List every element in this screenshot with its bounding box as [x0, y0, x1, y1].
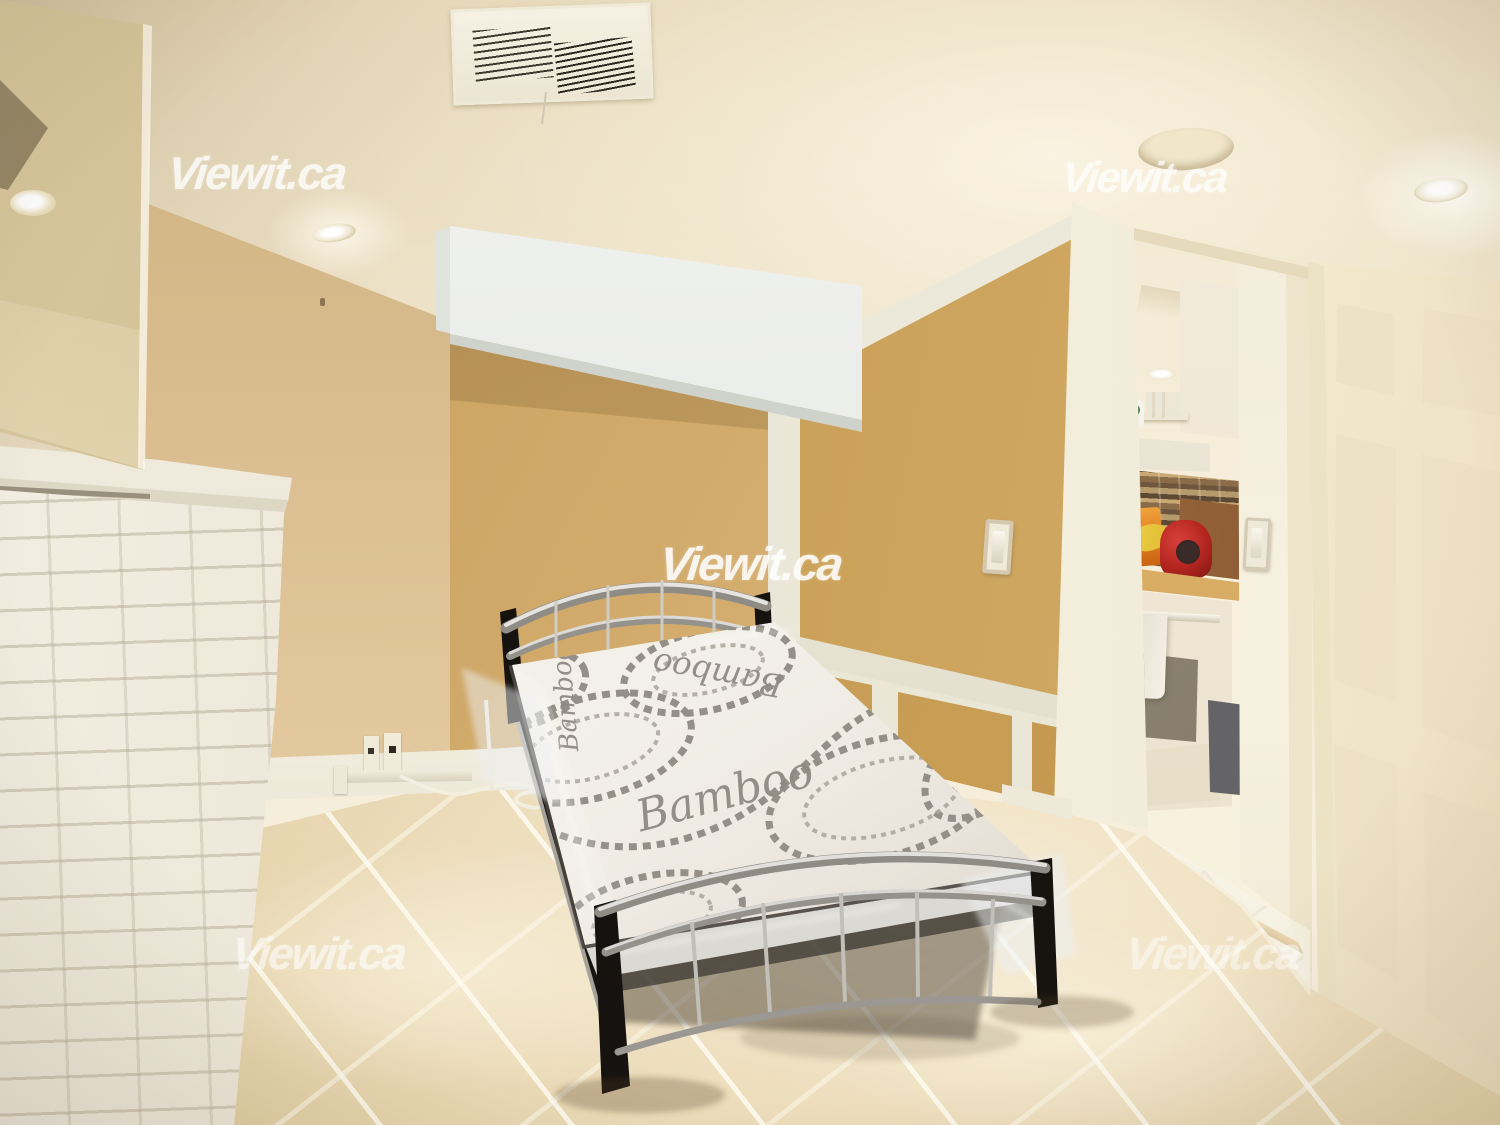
watermark-bottom-right: Viewit.ca: [1123, 928, 1301, 980]
watermark-center: Viewit.ca: [657, 536, 844, 591]
watermark-top-left: Viewit.ca: [165, 146, 348, 200]
watermark-top-right: Viewit.ca: [1059, 154, 1229, 203]
photo-canvas: Bamboo Bamboo Bamboo Bamboo: [0, 0, 1500, 1125]
watermark-bottom-left: Viewit.ca: [229, 928, 407, 980]
